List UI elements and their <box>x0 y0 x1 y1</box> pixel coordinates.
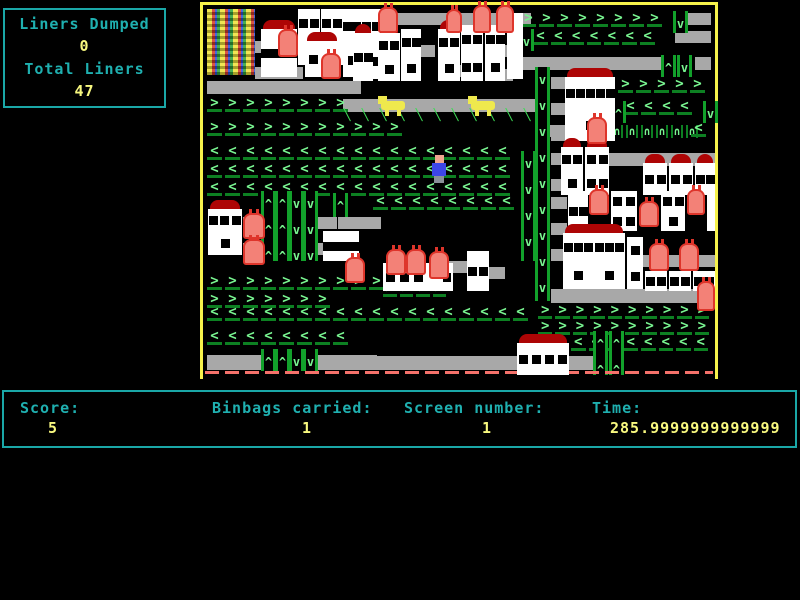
building <box>353 33 373 81</box>
red-roof <box>567 68 613 77</box>
conveyor-arrow-row: >>>>>>>> <box>207 98 357 112</box>
conveyor-arrow-row: >>>>>>>> <box>521 13 671 27</box>
conveyor-arrow-row: >>>>>>>>>> <box>538 321 712 335</box>
conveyor-arrow-column: vvvv <box>521 151 536 261</box>
road-tile <box>489 267 505 279</box>
conveyor-arrow-row: <<<<<<<<<<<<<<<<< <box>207 146 521 160</box>
dog-sprite <box>381 95 409 117</box>
conveyor-arrow-row: <<<<<<<< <box>207 331 357 345</box>
red-roof <box>565 224 623 233</box>
conveyor-arrow-column: v <box>673 11 688 33</box>
conveyor-arrow-row: <<<<<<<< <box>373 196 521 210</box>
binbag <box>243 239 265 265</box>
screen-number-label: Screen number: <box>404 401 544 416</box>
conveyor-arrow-column: ^ <box>333 193 348 217</box>
building <box>467 251 489 291</box>
conveyor-arrow-row: <<<<<<<<<<<<<<<<<< <box>207 307 537 321</box>
binbag <box>496 5 514 33</box>
conveyor-arrow-row: >>>>>>>>>> <box>538 305 712 319</box>
arc-arrow-row: ∩∩∩∩∩∩ <box>611 125 701 139</box>
conveyor-arrow-column: v <box>703 101 718 123</box>
red-roof <box>563 138 581 147</box>
conveyor-arrow-row: < <box>691 123 711 137</box>
conveyor-arrow-row: >>>>>>>>>>> <box>207 122 407 136</box>
total-liners-value: 47 <box>5 84 164 99</box>
liners-dumped-value: 0 <box>5 39 164 54</box>
building <box>627 237 643 289</box>
conveyor-arrow-column: v <box>289 349 304 371</box>
dump-zone <box>207 9 255 75</box>
red-roof <box>519 334 567 343</box>
road-tile <box>695 57 711 70</box>
time-value: 285.9999999999999 <box>610 421 781 436</box>
binbag <box>386 249 406 275</box>
conveyor-arrow-column: v <box>303 349 318 371</box>
red-roof <box>645 154 665 163</box>
building <box>707 191 715 231</box>
road-tile <box>377 356 517 370</box>
conveyor-arrow-column: ^ <box>275 349 290 371</box>
conveyor-arrow-column: vvv <box>289 191 304 261</box>
conveyor-arrow-row: <<<<<<< <box>533 31 658 45</box>
dog-sprite <box>471 95 499 117</box>
screen-number-value: 1 <box>482 421 492 436</box>
red-roof <box>671 154 691 163</box>
building <box>661 191 685 231</box>
binbags-carried-label: Binbags carried: <box>212 401 373 416</box>
binbag <box>321 53 341 79</box>
total-liners-label: Total Liners <box>5 62 164 77</box>
conveyor-arrow-column: v <box>677 55 692 77</box>
binbag <box>639 201 659 227</box>
conveyor-arrow-column: vvv <box>303 191 318 261</box>
building <box>401 29 421 81</box>
game-playfield[interactable]: >>>>>>>><<<<<<<>>>>>>>>╲╲╲╲╲╲╲╲╲╲╲>>>>>>… <box>200 2 718 379</box>
conveyor-arrow-row: <<<<<<<<<<<<<<<<< <box>207 164 521 178</box>
binbags-carried-value: 1 <box>302 421 312 436</box>
binbag <box>446 9 462 33</box>
conveyor-arrow-column: ^^ <box>609 331 624 375</box>
building <box>645 271 667 291</box>
conveyor-arrow-row: <<<< <box>623 101 703 115</box>
road-tile <box>551 197 567 209</box>
building <box>438 29 460 81</box>
binbag <box>589 189 609 215</box>
conveyor-arrow-column: ^^ <box>593 331 608 375</box>
building <box>561 147 583 195</box>
building <box>461 25 483 81</box>
binbag <box>429 251 449 279</box>
binbag <box>587 117 607 144</box>
conveyor-arrow-column: ^^^ <box>275 191 290 261</box>
binbag <box>378 7 398 33</box>
binbag <box>473 5 491 33</box>
road-tile <box>551 77 565 89</box>
building <box>378 33 400 81</box>
conveyor-arrow-column: ^ <box>661 55 676 77</box>
status-bar: Score: 5 Binbags carried: 1 Screen numbe… <box>2 390 797 448</box>
score-value: 5 <box>48 421 58 436</box>
road-tile <box>207 81 361 94</box>
building <box>517 343 569 375</box>
conveyor-arrow-row: <<<<<<<< <box>571 337 711 351</box>
red-roof <box>697 154 713 163</box>
conveyor-arrow-row: >>>>> <box>618 79 710 93</box>
building <box>485 25 505 81</box>
binbag <box>649 243 669 271</box>
red-roof <box>355 24 371 33</box>
binbag <box>406 249 426 275</box>
liners-dumped-label: Liners Dumped <box>5 17 164 32</box>
binbag <box>345 257 365 283</box>
liners-hud-box: Liners Dumped 0 Total Liners 47 <box>3 8 166 108</box>
road-tile <box>338 217 381 229</box>
binbag <box>243 213 265 239</box>
red-roof <box>210 200 240 209</box>
conveyor-arrow-column: vvvvvvvvv <box>535 67 550 301</box>
conveyor-arrow-row: >>>>>>> <box>207 294 333 308</box>
player-sprite <box>431 155 447 185</box>
binbag <box>679 243 699 271</box>
road-tile <box>421 45 435 57</box>
road-tile <box>551 103 565 115</box>
road-tile <box>569 356 593 370</box>
road-tile <box>685 13 711 25</box>
bottom-red-line <box>205 371 713 374</box>
diagonal-hatch-row: ╲╲╲╲╲╲╲╲╲╲╲ <box>339 108 539 122</box>
road-tile <box>551 289 711 303</box>
binbag <box>687 189 705 215</box>
score-label: Score: <box>20 401 80 416</box>
building <box>563 233 625 289</box>
conveyor-arrow-row: >>>>>>>>>>> <box>207 276 407 290</box>
building <box>208 209 242 255</box>
binbag <box>697 281 715 311</box>
time-label: Time: <box>592 401 642 416</box>
conveyor-arrow-column: ^ <box>261 349 276 371</box>
binbag <box>278 29 298 57</box>
red-roof <box>307 32 337 41</box>
building <box>669 271 691 291</box>
conveyor-arrow-row: <<<<<<<<<<<<<<<<< <box>207 182 521 196</box>
